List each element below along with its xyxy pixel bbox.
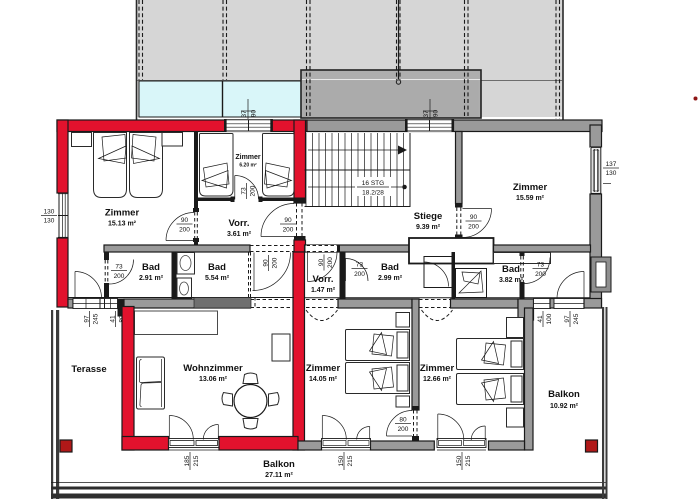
svg-text:215: 215 [465,455,472,466]
svg-text:3.61 m²: 3.61 m² [227,231,252,238]
svg-text:185: 185 [184,455,191,466]
svg-text:73: 73 [356,262,364,269]
svg-text:100: 100 [546,313,553,324]
svg-text:80: 80 [399,417,407,424]
svg-text:Bad: Bad [381,262,399,273]
svg-text:Bad: Bad [142,262,160,273]
svg-text:9.39 m²: 9.39 m² [416,224,441,231]
svg-text:37: 37 [241,110,248,118]
svg-text:200: 200 [114,273,125,280]
svg-text:200: 200 [535,271,546,278]
svg-text:150: 150 [456,455,463,466]
svg-text:200: 200 [249,185,256,196]
svg-text:Zimmer: Zimmer [105,208,140,219]
svg-text:200: 200 [468,224,479,231]
svg-text:Bad: Bad [502,264,520,275]
svg-text:Balkon: Balkon [548,389,580,400]
svg-text:Zimmer: Zimmer [420,363,455,374]
svg-text:10.92 m²: 10.92 m² [550,403,579,410]
svg-text:3.82 m²: 3.82 m² [499,277,524,284]
svg-text:13.06 m²: 13.06 m² [199,376,228,383]
svg-text:200: 200 [283,227,294,234]
svg-text:Zimmer: Zimmer [513,182,548,193]
svg-text:14.05 m²: 14.05 m² [309,376,338,383]
svg-text:15.59 m²: 15.59 m² [516,195,545,202]
svg-text:18.2/28: 18.2/28 [362,190,384,197]
svg-text:200: 200 [398,426,409,433]
svg-text:90: 90 [284,217,292,224]
svg-text:200: 200 [327,257,334,268]
svg-text:Balkon: Balkon [263,459,295,470]
svg-text:Vorr.: Vorr. [313,274,334,285]
svg-text:2.99 m²: 2.99 m² [378,275,403,282]
svg-text:15.13 m²: 15.13 m² [108,221,137,228]
svg-text:130: 130 [44,209,55,216]
svg-text:Zimmer: Zimmer [306,363,341,374]
svg-text:Stiege: Stiege [414,211,443,222]
svg-text:215: 215 [193,455,200,466]
svg-text:12.66 m²: 12.66 m² [423,376,452,383]
svg-text:1.47 m²: 1.47 m² [311,287,336,294]
svg-text:215: 215 [347,455,354,466]
svg-text:Wohnzimmer: Wohnzimmer [183,363,243,374]
svg-text:Bad: Bad [208,262,226,273]
svg-text:2.91 m²: 2.91 m² [139,275,164,282]
svg-text:Zimmer: Zimmer [235,154,261,161]
svg-text:Terasse: Terasse [71,364,106,375]
svg-text:200: 200 [179,227,190,234]
svg-text:245: 245 [573,313,580,324]
svg-text:5.54 m²: 5.54 m² [205,275,230,282]
svg-text:90: 90 [433,110,440,118]
svg-text:137: 137 [606,161,617,168]
svg-text:Vorr.: Vorr. [229,218,250,229]
svg-text:130: 130 [606,170,617,177]
svg-text:73: 73 [240,187,247,195]
svg-text:16 STG: 16 STG [362,180,384,187]
svg-text:97: 97 [83,315,90,323]
svg-text:200: 200 [271,257,278,268]
svg-text:41: 41 [109,315,116,323]
svg-text:73: 73 [537,262,545,269]
svg-text:200: 200 [354,271,365,278]
svg-text:97: 97 [564,315,571,323]
svg-text:150: 150 [338,455,345,466]
svg-text:90: 90 [470,214,478,221]
svg-text:27.11 m²: 27.11 m² [265,472,293,479]
svg-text:41: 41 [537,315,544,323]
svg-text:37: 37 [423,110,430,118]
svg-text:90: 90 [251,110,258,118]
svg-text:245: 245 [92,313,99,324]
svg-text:6.20 m²: 6.20 m² [239,163,257,169]
svg-text:130: 130 [44,218,55,225]
svg-text:90: 90 [262,259,269,267]
svg-text:90: 90 [181,217,189,224]
svg-text:73: 73 [115,264,123,271]
svg-text:90: 90 [318,259,325,267]
